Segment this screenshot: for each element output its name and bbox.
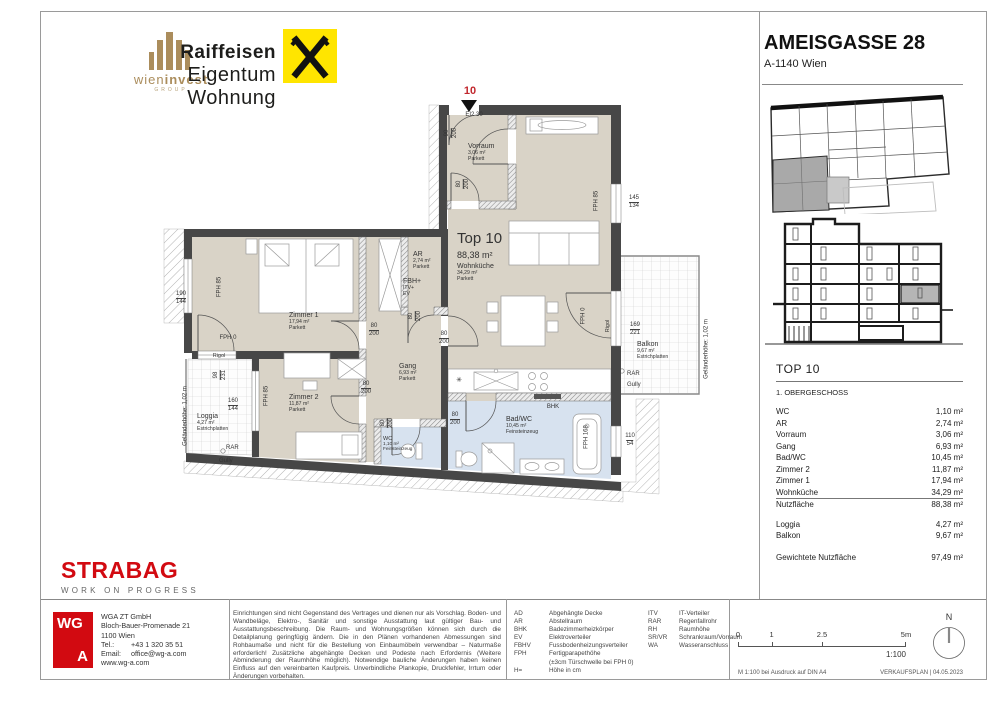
project-subtitle: A-1140 Wien <box>764 58 827 70</box>
verkaufsplan-sheet-page: wieninvest GROUP Raiffeisen Eigentum Woh… <box>0 0 1000 706</box>
dining-table <box>501 296 545 346</box>
wga-logo-top: WG <box>57 615 83 632</box>
total-label: Nutzfläche <box>776 499 814 511</box>
table-row-weighted: Gewichtete Nutzfläche 97,49 m² <box>776 552 963 564</box>
legend-row: ARAbstellraum <box>514 618 648 626</box>
footer-divider-2 <box>506 599 507 679</box>
plan-type-date: VERKAUFSPLAN | 04.05.2023 <box>880 670 963 676</box>
key-plan <box>765 92 965 214</box>
desk <box>284 353 330 378</box>
scale-tick-label: 2.5 <box>817 630 827 639</box>
row-value: 4,27 m² <box>936 519 963 531</box>
table-row-room: Bad/WC10,45 m² <box>776 452 963 464</box>
strabag-tagline: WORK ON PROGRESS <box>61 586 199 595</box>
legend-row: RARRegenfallrohr <box>648 618 726 626</box>
legend-row: H=Höhe in cm <box>514 667 648 675</box>
contact-line: WGA ZT GmbH <box>101 612 229 621</box>
wga-contact-block: WGA ZT GmbHBloch-Bauer-Promenade 211100 … <box>101 612 229 668</box>
row-label: AR <box>776 418 787 430</box>
scale-tick-label: 1 <box>770 630 774 639</box>
row-label: Vorraum <box>776 429 806 441</box>
strabag-logo: STRABAG WORK ON PROGRESS <box>61 557 199 595</box>
project-title: AMEISGASSE 28 <box>764 32 925 55</box>
unit-table-floor: 1. OBERGESCHOSS <box>776 388 963 397</box>
legend-row: SR/VRSchrankraum/Vorraum <box>648 634 726 642</box>
sofa <box>509 221 599 265</box>
legend-row: BHKBadezimmerheizkörper <box>514 626 648 634</box>
contact-line: Bloch-Bauer-Promenade 21 <box>101 621 229 630</box>
toilet-wc <box>416 443 422 459</box>
footer-divider-1 <box>229 599 230 679</box>
legend-row: WAWasseranschluss <box>648 642 726 650</box>
row-value: 17,94 m² <box>931 475 963 487</box>
row-value: 3,06 m² <box>936 429 963 441</box>
bhk-heater <box>534 394 561 399</box>
unit-table-title: TOP 10 <box>776 362 963 382</box>
unit-table-outdoor-rows: Loggia4,27 m²Balkon9,67 m² <box>776 519 963 542</box>
row-label: Gang <box>776 441 796 453</box>
weighted-label: Gewichtete Nutzfläche <box>776 552 856 564</box>
svg-text:N: N <box>946 612 953 622</box>
floor-plan-drawing <box>156 81 736 506</box>
row-value: 11,87 m² <box>932 464 963 476</box>
loggia-floor <box>186 359 252 455</box>
row-value: 2,74 m² <box>936 418 963 430</box>
vanity <box>520 459 564 474</box>
room-vorraum-floor <box>447 115 508 201</box>
row-label: WC <box>776 406 789 418</box>
legend-column-1: ADAbgehängte DeckeARAbstellraumBHKBadezi… <box>514 610 648 675</box>
floor-plan: 10EI2 3090200Vorraum3,06 m²Parkett80200T… <box>156 81 736 506</box>
table-row-total: Nutzfläche 88,38 m² <box>776 498 963 511</box>
north-arrow-icon: N <box>930 610 968 664</box>
table-row-outdoor: Balkon9,67 m² <box>776 530 963 542</box>
raiffeisen-gable-cross-icon <box>283 29 337 83</box>
contact-line: Email:office@wg-a.com <box>101 649 229 658</box>
row-label: Bad/WC <box>776 452 806 464</box>
legend-column-2: ITVIT-VerteilerRARRegenfallrohrRHRaumhöh… <box>648 610 726 675</box>
row-value: 10,45 m² <box>931 452 963 464</box>
total-value: 88,38 m² <box>931 499 963 511</box>
header-divider <box>762 84 963 85</box>
raiffeisen-line1: Raiffeisen <box>101 42 276 64</box>
scale-ratio: 1:100 <box>738 650 906 659</box>
legend-row: EVElektroverteiler <box>514 634 648 642</box>
building-section <box>763 214 968 354</box>
strabag-name: STRABAG <box>61 557 199 584</box>
legend-row: FPHFertigparapethöhe(±3cm Türschwelle be… <box>514 650 648 666</box>
table-row-room: AR2,74 m² <box>776 418 963 430</box>
footer-divider <box>41 599 986 600</box>
balcony-floor <box>620 256 699 394</box>
abbreviation-legend: ADAbgehängte DeckeARAbstellraumBHKBadezi… <box>514 610 726 675</box>
scale-tick-label: 0 <box>736 630 740 639</box>
row-label: Loggia <box>776 519 800 531</box>
legal-disclaimer: Einrichtungen sind nicht Gegenstand des … <box>233 610 501 681</box>
scale-tick <box>905 642 906 646</box>
wga-logo: WG A <box>53 612 93 668</box>
row-label: Wohnküche <box>776 487 818 499</box>
legend-row: RHRaumhöhe <box>648 626 726 634</box>
unit-area-table: TOP 10 1. OBERGESCHOSS WC1,10 m²AR2,74 m… <box>776 362 963 563</box>
legend-row: ITVIT-Verteiler <box>648 610 726 618</box>
contact-website: www.wg-a.com <box>101 658 229 667</box>
table-row-room: Gang6,93 m² <box>776 441 963 453</box>
weighted-value: 97,49 m² <box>931 552 963 564</box>
row-label: Zimmer 1 <box>776 475 810 487</box>
contact-line: Tel.:+43 1 320 35 51 <box>101 640 229 649</box>
legend-row: ADAbgehängte Decke <box>514 610 648 618</box>
row-value: 1,10 m² <box>936 406 963 418</box>
table-row-room: Wohnküche34,29 m² <box>776 487 963 499</box>
right-panel-divider <box>759 12 760 599</box>
wga-logo-bottom: A <box>77 648 88 665</box>
table-row-room: WC1,10 m² <box>776 406 963 418</box>
scale-tick <box>738 642 739 646</box>
unit-table-rows: WC1,10 m²AR2,74 m²Vorraum3,06 m²Gang6,93… <box>776 406 963 498</box>
scale-bar: 012.55m <box>738 624 906 647</box>
row-value: 34,29 m² <box>931 487 963 499</box>
row-label: Balkon <box>776 530 800 542</box>
table-row-room: Vorraum3,06 m² <box>776 429 963 441</box>
row-value: 6,93 m² <box>936 441 963 453</box>
plan-sheet: wieninvest GROUP Raiffeisen Eigentum Woh… <box>40 11 987 680</box>
row-label: Zimmer 2 <box>776 464 810 476</box>
table-row-outdoor: Loggia4,27 m² <box>776 519 963 531</box>
print-note: M 1:100 bei Ausdruck auf DIN A4 <box>738 670 826 676</box>
scale-tick-label: 5m <box>901 630 911 639</box>
row-value: 9,67 m² <box>936 530 963 542</box>
contact-line: 1100 Wien <box>101 631 229 640</box>
table-row-room: Zimmer 117,94 m² <box>776 475 963 487</box>
north-label: N <box>946 612 953 622</box>
table-row-room: Zimmer 211,87 m² <box>776 464 963 476</box>
scale-tick <box>822 642 823 646</box>
legend-row: FBHVFussbodenheizungsverteiler <box>514 642 648 650</box>
scale-tick <box>772 642 773 646</box>
scale-cell: 012.55m 1:100 N M 1:100 bei Ausdruck auf… <box>738 610 963 679</box>
